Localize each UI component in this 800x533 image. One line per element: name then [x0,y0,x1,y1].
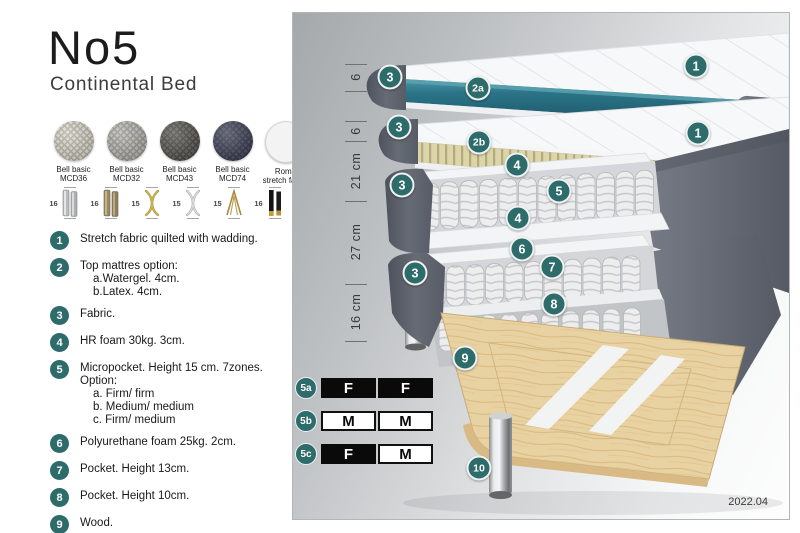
ruler-tick [345,141,367,142]
legend-item-text: Fabric. [80,308,115,325]
callout-1: 1 [684,54,709,79]
firmness-row-id: 5a [295,377,317,399]
ruler-tick [345,91,367,92]
legend-item-text: HR foam 30kg. 3cm. [80,335,185,352]
leg-ruler-dash [269,187,281,188]
firmness-cell: M [378,411,433,431]
callout-9: 9 [453,346,478,371]
legend-item-number: 6 [50,434,69,453]
firmness-row-5c: 5cFM [295,443,433,465]
legend-item-number: 2 [50,258,69,277]
legend-item-subline: b.Latex. 4cm. [93,286,180,299]
legend-item-text: Wood. [80,517,113,533]
callout-5: 5 [547,179,572,204]
legend-item: 9Wood. [50,517,302,533]
leg-icon-tapered-black-gold [265,189,285,217]
leg-ruler-dash [105,218,117,219]
legend-item-number: 3 [50,306,69,325]
ruler-tick [345,201,367,202]
firmness-cell: M [321,411,376,431]
callout-3: 3 [378,65,403,90]
legend-item-number: 4 [50,333,69,352]
diagram-panel: 6621 cm27 cm16 cm 32a132b143546378910 5a… [292,12,790,520]
fabric-swatch: Bell basicMCD32 [103,121,150,185]
firmness-cell: F [321,378,376,398]
fabric-swatch-code: MCD43 [156,174,203,183]
legend-item: 6Polyurethane foam 25kg. 2cm. [50,436,302,453]
leg-ruler-dash [64,187,76,188]
legend-item-subline: a. Firm/ firm [93,388,302,401]
leg-height-label: 15 [213,199,221,208]
callout-10: 10 [467,456,492,481]
legend-item: 3Fabric. [50,308,302,325]
leg-height-label: 16 [49,199,57,208]
legend-item: 5Micropocket. Height 15 cm. 7zones. Opti… [50,362,302,426]
leg-ruler-dash [105,187,117,188]
leg-icon-hairpin-gold [224,189,244,217]
fabric-swatch: Bell basicMCD43 [156,121,203,185]
callout-6: 6 [510,237,535,262]
ruler-tick [345,121,367,122]
spec-sheet: No5 Continental Bed Bell basicMCD36Bell … [0,0,800,533]
ruler-tick [345,64,367,65]
fabric-swatch: Bell basicMCD74 [209,121,256,185]
firmness-cells: MM [321,411,433,431]
callout-2a: 2a [466,76,491,101]
leg-height-label: 16 [90,199,98,208]
legend-item: 7Pocket. Height 13cm. [50,463,302,480]
fabric-swatch-name: Bell basic [103,165,150,174]
callout-4: 4 [505,153,530,178]
fabric-swatch: Bell basicMCD36 [50,121,97,185]
ruler-label: 21 cm [349,153,363,190]
legend-item-number: 8 [50,488,69,507]
legend-item-main: Stretch fabric quilted with wadding. [80,233,258,246]
legend-item-main: Wood. [80,517,113,530]
fabric-swatch-circle [54,121,94,161]
leg-ruler-dash [228,187,240,188]
leg-ruler-dash [269,218,281,219]
leg-option: 15 [208,187,249,219]
legend-item-text: Pocket. Height 10cm. [80,490,189,507]
firmness-row-5b: 5bMM [295,410,433,432]
leg-ruler-dash [146,218,158,219]
legend-item-main: HR foam 30kg. 3cm. [80,335,185,348]
ruler-label: 16 cm [349,294,363,331]
leg-option: 15 [126,187,167,219]
leg-icon-cylinder-silver [60,189,80,217]
legend-item-main: Top mattres option: [80,260,180,273]
leg-ruler-dash [146,187,158,188]
callout-3: 3 [390,173,415,198]
legend-item-text: Polyurethane foam 25kg. 2cm. [80,436,236,453]
legend-item-main: Polyurethane foam 25kg. 2cm. [80,436,236,449]
legend-item-main: Micropocket. Height 15 cm. 7zones. Optio… [80,362,302,388]
legend-item: 1Stretch fabric quilted with wadding. [50,233,302,250]
firmness-cell: F [321,444,376,464]
fabric-swatch-name: Bell basic [156,165,203,174]
fabric-swatch-code: MCD74 [209,174,256,183]
leg-option: 15 [167,187,208,219]
firmness-cell: F [378,378,433,398]
ruler-tick [345,284,367,285]
fabric-swatch-name: Bell basic [209,165,256,174]
legend-item-subline: c. Firm/ medium [93,414,302,427]
fabric-swatch-code: MCD36 [50,174,97,183]
legend-item-text: Stretch fabric quilted with wadding. [80,233,258,250]
legend-list: 1Stretch fabric quilted with wadding.2To… [50,233,302,533]
callout-4: 4 [506,206,531,231]
callout-3: 3 [403,261,428,286]
leg-icon-cylinder-bronze [101,189,121,217]
leg-height-label: 16 [254,199,262,208]
fabric-swatch-name: Bell basic [50,165,97,174]
legend-item-main: Fabric. [80,308,115,321]
callout-3: 3 [387,115,412,140]
leg-height-label: 15 [172,199,180,208]
fabric-swatch-circle [107,121,147,161]
callout-2b: 2b [467,130,492,155]
firmness-row-id: 5c [295,443,317,465]
ruler-tick [345,341,367,342]
firmness-cell: M [378,444,433,464]
legend-item-text: Pocket. Height 13cm. [80,463,189,480]
leg-height-label: 15 [131,199,139,208]
leg-ruler-dash [64,218,76,219]
firmness-row-5a: 5aFF [295,377,433,399]
version-label: 2022.04 [728,496,768,508]
legend-item-number: 9 [50,515,69,533]
leg-icon-cross-gold [142,189,162,217]
firmness-row-id: 5b [295,410,317,432]
legend-item-number: 1 [50,231,69,250]
callout-7: 7 [540,255,565,280]
ruler-label: 6 [349,127,363,134]
legend-item: 2Top mattres option:a.Watergel. 4cm.b.La… [50,260,302,298]
ruler-label: 6 [349,73,363,80]
legend-item-main: Pocket. Height 13cm. [80,463,189,476]
legend-item-text: Top mattres option:a.Watergel. 4cm.b.Lat… [80,260,180,298]
legend-item-number: 5 [50,360,69,379]
firmness-cells: FM [321,444,433,464]
legend-item: 8Pocket. Height 10cm. [50,490,302,507]
callout-1: 1 [686,121,711,146]
leg-ruler-dash [187,218,199,219]
legend-item-subline: a.Watergel. 4cm. [93,273,180,286]
firmness-cells: FF [321,378,433,398]
leg-options-row: 16 16 [44,187,290,219]
callout-8: 8 [542,292,567,317]
legend-item-main: Pocket. Height 10cm. [80,490,189,503]
leg-option: 16 [44,187,85,219]
fabric-swatch-circle [213,121,253,161]
page-subtitle: Continental Bed [50,74,197,96]
page-title: No5 [48,20,140,75]
legend-item-subline: b. Medium/ medium [93,401,302,414]
right-metal-leg [489,413,512,500]
leg-ruler-dash [187,187,199,188]
legend-item-text: Micropocket. Height 15 cm. 7zones. Optio… [80,362,302,426]
fabric-swatches: Bell basicMCD36Bell basicMCD32Bell basic… [50,121,309,185]
fabric-swatch-code: MCD32 [103,174,150,183]
leg-ruler-dash [228,218,240,219]
fabric-swatch-circle [160,121,200,161]
leg-option: 16 [85,187,126,219]
leg-option: 16 [249,187,290,219]
leg-icon-cross-silver [183,189,203,217]
ruler-label: 27 cm [349,224,363,261]
legend-item: 4HR foam 30kg. 3cm. [50,335,302,352]
legend-item-number: 7 [50,461,69,480]
